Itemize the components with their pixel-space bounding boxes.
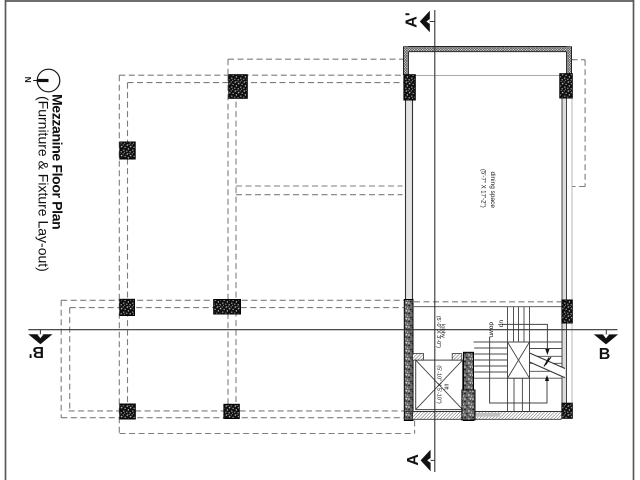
svg-text:(5'-0" X 3'-0"): (5'-0" X 3'-0") [435, 316, 441, 348]
svg-text:(5'-10" X 5'-10"): (5'-10" X 5'-10") [436, 365, 442, 404]
svg-text:dining space: dining space [489, 172, 496, 209]
svg-text:N: N [23, 77, 33, 83]
svg-text:A: A [405, 454, 422, 466]
svg-text:A': A' [404, 12, 421, 27]
svg-text:(5'-7" X 17'-2"): (5'-7" X 17'-2") [479, 169, 485, 208]
svg-text:lift: lift [443, 384, 449, 390]
svg-text:up: up [498, 320, 505, 328]
svg-text:B: B [599, 346, 611, 363]
svg-text:(Furniture & Fixture Lay-out): (Furniture & Fixture Lay-out) [36, 96, 52, 272]
svg-text:B': B' [29, 343, 44, 360]
